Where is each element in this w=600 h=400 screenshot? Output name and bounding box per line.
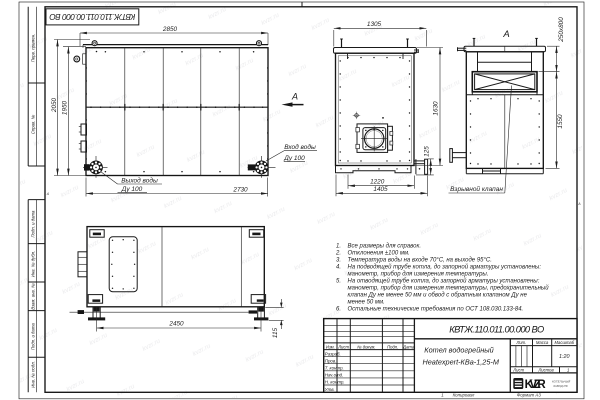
svg-text:Справ. №: Справ. №	[31, 114, 36, 134]
svg-text:Лист: Лист	[512, 368, 524, 373]
svg-text:1: 1	[567, 368, 569, 373]
svg-text:На подводящей трубе котла, до: На подводящей трубе котла, до запорной а…	[348, 264, 542, 271]
svg-text:А: А	[291, 92, 298, 102]
svg-text:ЗАВОД РФ: ЗАВОД РФ	[553, 384, 568, 388]
svg-text:Котел водогрейный: Котел водогрейный	[424, 345, 493, 354]
svg-text:KVZR: KVZR	[525, 379, 547, 391]
svg-text:Разраб.: Разраб.	[325, 351, 341, 356]
svg-text:1950: 1950	[62, 100, 69, 115]
svg-text:1.: 1.	[336, 244, 341, 250]
svg-text:2850: 2850	[162, 26, 178, 33]
svg-text:Копировал: Копировал	[453, 393, 475, 398]
svg-text:1:20: 1:20	[559, 354, 570, 360]
svg-text:менее 50 мм.: менее 50 мм.	[348, 300, 385, 306]
svg-text:Масштаб: Масштаб	[555, 340, 575, 345]
svg-text:2450: 2450	[168, 320, 184, 327]
svg-text:Heatexpert-КВа-1,25-М: Heatexpert-КВа-1,25-М	[422, 358, 499, 367]
svg-text:Перв. примен.: Перв. примен.	[31, 34, 36, 63]
svg-text:2730: 2730	[232, 186, 248, 193]
svg-text:Лит.: Лит.	[515, 340, 526, 345]
svg-text:манометр, прибор для измерения: манометр, прибор для измерения температу…	[348, 285, 550, 292]
svg-text:2050: 2050	[51, 97, 58, 113]
svg-text:Дата: Дата	[402, 344, 415, 349]
svg-text:Подп. и дата: Подп. и дата	[31, 323, 36, 351]
svg-text:3.: 3.	[336, 258, 341, 264]
svg-text:Подп.: Подп.	[387, 344, 398, 349]
svg-text:КВТЖ.110.011.00.000 ВО: КВТЖ.110.011.00.000 ВО	[49, 12, 136, 21]
svg-text:Остальные технические требован: Остальные технические требования по ОСТ …	[348, 307, 524, 313]
svg-text:Взам. инв. №: Взам. инв. №	[31, 283, 36, 310]
svg-text:Инв. № подл.: Инв. № подл.	[31, 361, 36, 388]
svg-text:125: 125	[423, 146, 430, 157]
svg-text:Все размеры для справок.: Все размеры для справок.	[348, 244, 422, 250]
svg-text:Масса: Масса	[536, 340, 549, 345]
svg-text:4.: 4.	[336, 265, 341, 271]
svg-text:115: 115	[272, 327, 279, 338]
svg-text:Нач.отд.: Нач.отд.	[325, 373, 344, 378]
svg-text:манометр, прибор для измерения: манометр, прибор для измерения температу…	[348, 272, 489, 278]
svg-text:1550: 1550	[557, 114, 564, 129]
svg-text:КВТЖ.110.011.00.000 ВО: КВТЖ.110.011.00.000 ВО	[449, 324, 544, 334]
svg-text:Утв.: Утв.	[325, 387, 335, 392]
svg-text:Листов: Листов	[537, 368, 554, 373]
svg-text:Пров.: Пров.	[325, 358, 337, 363]
svg-text:Изм.: Изм.	[326, 344, 335, 349]
svg-text:5.: 5.	[336, 279, 341, 285]
svg-text:6.: 6.	[336, 307, 341, 313]
svg-text:А: А	[502, 29, 509, 40]
svg-text:2.: 2.	[335, 251, 341, 257]
svg-text:На отводящей трубе котла, до з: На отводящей трубе котла, до запорной ар…	[348, 278, 540, 285]
svg-text:№ докум.: № докум.	[357, 344, 375, 349]
svg-text:1630: 1630	[432, 101, 439, 116]
svg-text:Формат А3: Формат А3	[517, 393, 542, 398]
svg-text:Подп. и дата: Подп. и дата	[31, 210, 36, 238]
svg-text:1220: 1220	[370, 179, 385, 186]
svg-text:250х800: 250х800	[558, 17, 565, 43]
svg-text:Инв. № дубл.: Инв. № дубл.	[31, 251, 36, 277]
svg-text:Ду 100: Ду 100	[121, 186, 143, 193]
svg-text:Н. контр.: Н. контр.	[325, 380, 345, 385]
svg-text:1305: 1305	[367, 21, 382, 28]
svg-text:Отклонения ±100 мм.: Отклонения ±100 мм.	[348, 251, 410, 257]
svg-text:клапан Ду не менее 50 мм и обв: клапан Ду не менее 50 мм и обвод с обрат…	[348, 293, 528, 299]
svg-text:Вход воды: Вход воды	[284, 143, 316, 151]
svg-text:Выход воды: Выход воды	[121, 176, 158, 184]
svg-text:Взрывной клапан: Взрывной клапан	[450, 185, 503, 193]
svg-text:Ду 100: Ду 100	[283, 155, 305, 162]
svg-text:Т. контр.: Т. контр.	[325, 366, 344, 371]
svg-text:Температура воды на входе 70°С: Температура воды на входе 70°С, на выход…	[348, 258, 492, 264]
svg-text:Лист: Лист	[337, 344, 349, 349]
svg-text:1405: 1405	[373, 186, 388, 193]
